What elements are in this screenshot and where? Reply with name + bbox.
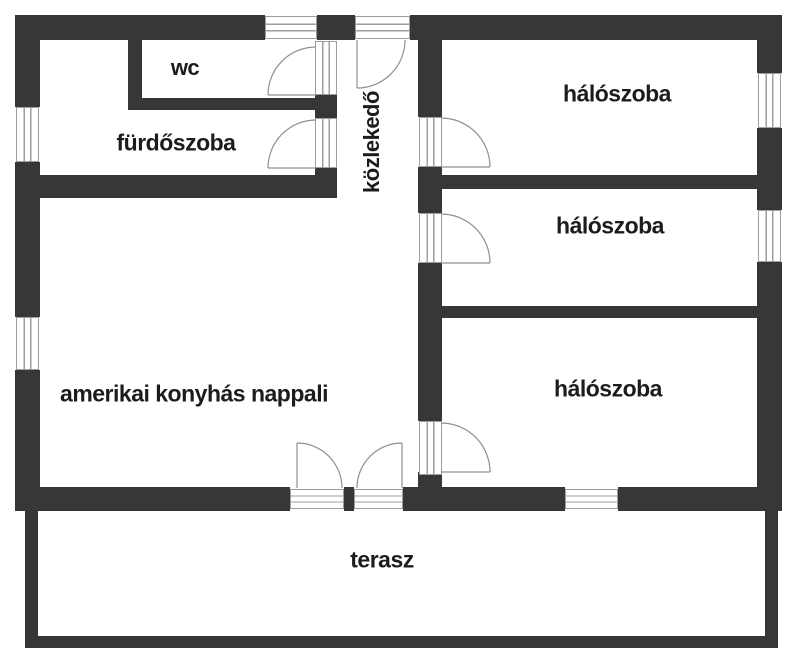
door-swing-arc-bedroom2	[441, 214, 490, 263]
room-label-bedroom1: hálószoba	[563, 81, 671, 108]
room-label-living-room: amerikai konyhás nappali	[60, 381, 328, 408]
door-swing-arc-entrance	[357, 40, 405, 88]
room-label-bedroom3: hálószoba	[554, 376, 662, 403]
room-label-hallway: közlekedő	[359, 91, 385, 193]
room-label-bathroom: fürdőszoba	[117, 130, 236, 157]
door-swing-arc-bathroom	[268, 120, 316, 168]
room-label-bedroom2: hálószoba	[556, 213, 664, 240]
door-swing-arc-bedroom1	[441, 118, 490, 167]
door-swing-arc-wc	[268, 47, 316, 95]
door-swing-arc-terrace-left	[297, 443, 342, 488]
room-label-wc: wc	[171, 55, 199, 81]
floor-plan-canvas: wc fürdőszoba közlekedő hálószoba hálósz…	[0, 0, 800, 668]
room-label-terrace: terasz	[350, 547, 413, 574]
door-swing-arc-terrace-right	[357, 443, 402, 488]
door-swing-arc-bedroom3	[441, 423, 490, 472]
